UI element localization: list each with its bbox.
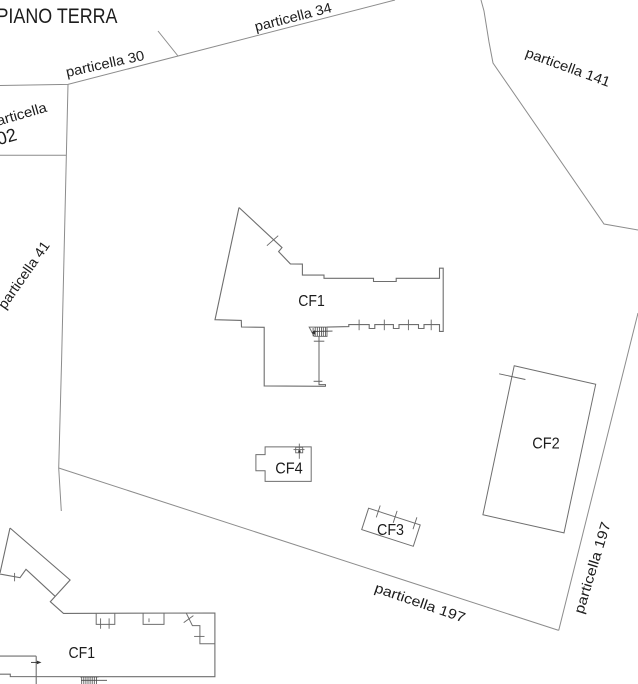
svg-text:CF4: CF4 — [275, 461, 303, 478]
svg-text:CF1: CF1 — [69, 645, 96, 662]
svg-text:PIANO TERRA: PIANO TERRA — [0, 4, 118, 28]
svg-text:CF2: CF2 — [532, 435, 560, 452]
svg-text:CF1: CF1 — [298, 293, 325, 310]
svg-text:CF3: CF3 — [377, 522, 404, 539]
